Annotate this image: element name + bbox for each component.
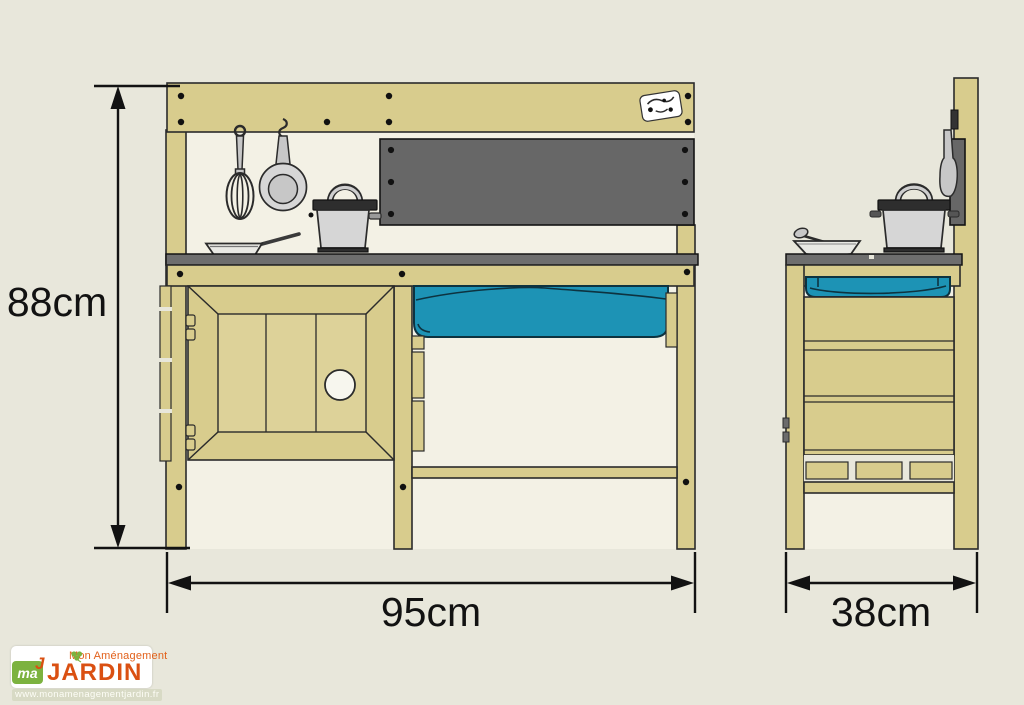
width-dimension-label: 95cm <box>381 589 481 635</box>
monogram-j: J <box>35 654 44 674</box>
height-dimension-label: 88cm <box>7 279 107 325</box>
brand-sticker <box>639 90 683 122</box>
side-front-leg <box>786 265 804 549</box>
side-hook <box>951 110 958 129</box>
hinge-strip <box>159 286 172 461</box>
logo-website-url: www.monamenagementjardin.fr <box>12 689 162 701</box>
mud-basin-front <box>414 286 668 337</box>
cabinet-door <box>186 286 394 460</box>
dimension-width: 95cm <box>167 552 695 635</box>
mud-basin-side <box>806 277 950 297</box>
front-middle-leg <box>394 286 412 549</box>
side-slatted-shelf <box>804 455 954 493</box>
front-under-counter-rail <box>167 265 694 286</box>
front-counter-top <box>166 254 698 265</box>
site-logo: Mon Aménagement JARDIN ma J www.monamena… <box>11 646 161 688</box>
side-view <box>783 78 978 549</box>
depth-dimension-label: 38cm <box>831 589 931 635</box>
side-bowl-icon <box>793 227 860 256</box>
front-view <box>159 83 698 549</box>
top-rail <box>167 83 694 132</box>
logo-card: Mon Aménagement JARDIN ma J <box>11 646 152 688</box>
door-finger-hole <box>325 370 355 400</box>
dimension-depth: 38cm <box>786 552 977 635</box>
brand-name-line2: JARDIN <box>47 659 142 687</box>
side-body-panels <box>804 297 954 455</box>
backsplash-panel <box>380 139 694 225</box>
kitchen-dimension-diagram: 88cm 95cm 38cm <box>0 0 1024 705</box>
front-stretcher-rail <box>412 467 677 478</box>
